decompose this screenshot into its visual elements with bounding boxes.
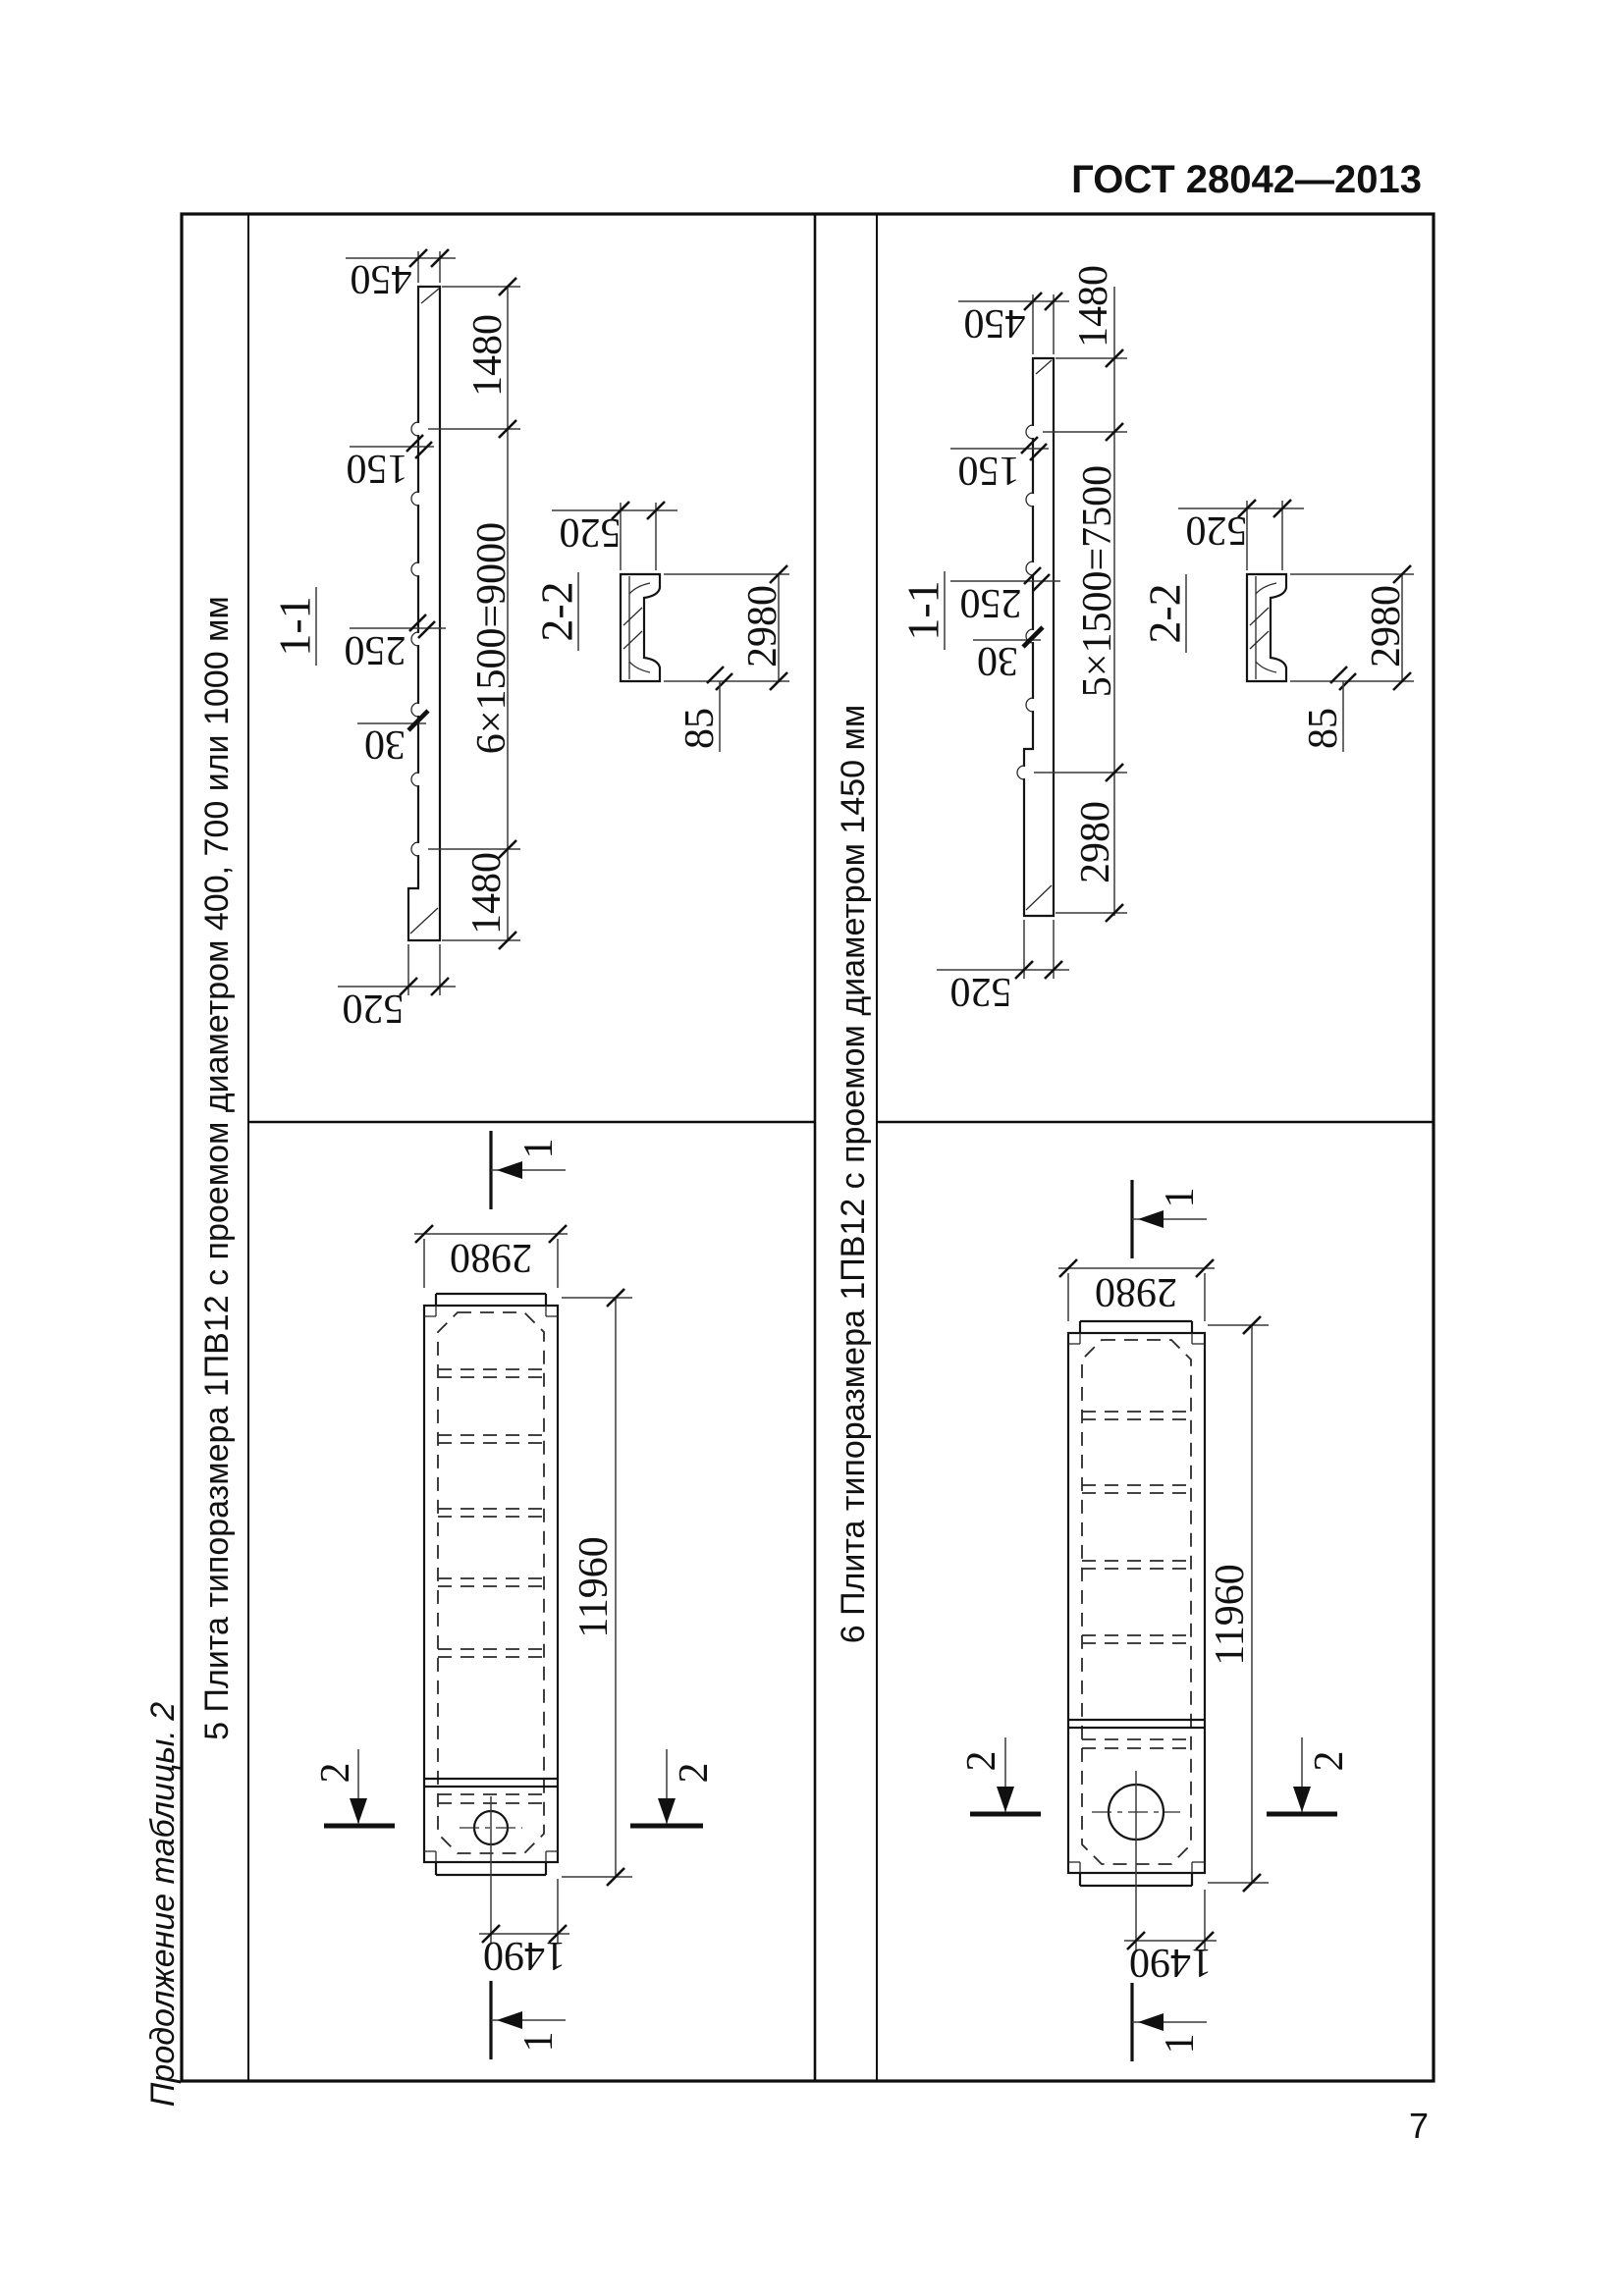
- svg-text:2980: 2980: [1364, 585, 1409, 667]
- cut-mark-1-bottom: 1: [491, 1981, 566, 2059]
- svg-text:1480: 1480: [1071, 265, 1116, 347]
- svg-text:85: 85: [677, 708, 723, 749]
- panel5: 5 Плита типоразмера 1ПВ12 с проемом диам…: [198, 249, 789, 2059]
- panel6: 6 Плита типоразмера 1ПВ12 с проемом диам…: [835, 265, 1414, 2061]
- svg-text:30: 30: [364, 721, 406, 767]
- panel6-title: 6 Плита типоразмера 1ПВ12 с проемом диам…: [835, 705, 872, 1644]
- svg-text:2980: 2980: [1095, 1269, 1177, 1314]
- svg-text:2980: 2980: [740, 585, 785, 667]
- svg-text:520: 520: [343, 986, 405, 1031]
- panel6-section-1-1: 1-1 450 1480: [898, 265, 1128, 1014]
- svg-text:1480: 1480: [464, 852, 510, 934]
- svg-text:1: 1: [516, 2032, 562, 2053]
- plan-outline: [424, 1294, 558, 1875]
- svg-text:6×1500=9000: 6×1500=9000: [469, 522, 514, 754]
- table-continuation-label: Продолжение таблицы. 2: [144, 1702, 182, 2108]
- dim-85: 85: [1301, 667, 1356, 752]
- svg-text:2: 2: [1307, 1751, 1352, 1772]
- dim-85: 85: [677, 667, 732, 752]
- dim-11960-length: 11960: [562, 1289, 632, 1886]
- cut-mark-1-top: 1: [491, 1131, 566, 1209]
- svg-text:85: 85: [1301, 708, 1346, 749]
- svg-text:2: 2: [959, 1751, 1004, 1772]
- svg-text:150: 150: [958, 448, 1020, 493]
- svg-text:2: 2: [672, 1763, 717, 1784]
- dim-520: 520: [1178, 500, 1304, 570]
- svg-text:30: 30: [977, 638, 1018, 683]
- section-label: 1-1: [270, 596, 320, 656]
- cut-mark-1-bottom: 1: [1132, 1983, 1207, 2061]
- cross-section-outline: [621, 574, 660, 681]
- longitudinal-section-outline: [408, 287, 440, 940]
- panel5-section-1-1: 1-1 450 150: [270, 249, 521, 1031]
- panel5-title: 5 Плита типоразмера 1ПВ12 с проемом диам…: [198, 596, 236, 1740]
- document-page: ГОСТ 28042—2013 Продолжение таблицы. 2 7…: [0, 0, 1624, 2296]
- panel6-section-2-2: 2-2 520 2980 85: [1140, 500, 1415, 752]
- table-frame: [182, 214, 1434, 2081]
- dim-1490-hole: 1490: [479, 1879, 569, 1978]
- section-label: 1-1: [898, 580, 948, 640]
- dim-520: 520: [552, 502, 677, 570]
- svg-text:1490: 1490: [1129, 1940, 1212, 1985]
- svg-text:1: 1: [1158, 2034, 1203, 2055]
- svg-text:520: 520: [1186, 507, 1248, 553]
- svg-text:1: 1: [516, 1139, 562, 1159]
- svg-text:450: 450: [351, 256, 412, 301]
- svg-text:250: 250: [960, 580, 1022, 625]
- svg-text:520: 520: [950, 969, 1012, 1014]
- dim-chain-length: 1480 6×1500=9000 1480: [428, 278, 520, 949]
- drawing-sheet: ГОСТ 28042—2013 Продолжение таблицы. 2 7…: [0, 0, 1624, 2296]
- section-label: 2-2: [532, 581, 582, 641]
- svg-text:450: 450: [964, 300, 1026, 346]
- page-number: 7: [1409, 2106, 1429, 2146]
- svg-text:250: 250: [345, 627, 406, 672]
- cut-mark-1-top: 1: [1132, 1180, 1207, 1258]
- svg-text:11960: 11960: [571, 1536, 617, 1637]
- panel5-plan: 1 2980: [313, 1131, 717, 2059]
- svg-text:1480: 1480: [465, 314, 511, 397]
- cut-mark-2-right: 2: [1267, 1737, 1352, 1814]
- dim-2980: 2980: [664, 565, 789, 690]
- section-label: 2-2: [1140, 583, 1190, 643]
- panel6-plan: 1 2980: [959, 1180, 1352, 2061]
- svg-text:5×1500=7500: 5×1500=7500: [1075, 465, 1120, 697]
- svg-text:11960: 11960: [1208, 1564, 1253, 1665]
- dim-1490-hole: 1490: [1124, 1890, 1217, 1985]
- svg-text:2980: 2980: [450, 1235, 532, 1280]
- dim-2980: 2980: [1290, 565, 1414, 690]
- svg-text:1: 1: [1158, 1188, 1203, 1208]
- panel5-section-2-2: 2-2 520 2980 85: [532, 502, 790, 752]
- svg-text:2: 2: [313, 1763, 358, 1784]
- svg-text:2980: 2980: [1073, 801, 1118, 883]
- dim-2980-width: 2980: [414, 1225, 568, 1288]
- dim-11960-length: 11960: [1208, 1316, 1269, 1892]
- dim-520-end: 520: [937, 920, 1069, 1014]
- longitudinal-section-outline: [1024, 358, 1054, 916]
- cut-mark-2-left: 2: [959, 1737, 1041, 1814]
- cut-mark-2-left: 2: [313, 1749, 395, 1826]
- dim-450: 450: [958, 293, 1069, 354]
- cut-mark-2-right: 2: [630, 1749, 717, 1826]
- dim-2980-width: 2980: [1058, 1259, 1215, 1321]
- svg-text:1490: 1490: [483, 1933, 566, 1978]
- svg-text:520: 520: [560, 509, 622, 555]
- svg-text:150: 150: [347, 446, 408, 491]
- dim-520-end: 520: [338, 944, 456, 1031]
- page-header: ГОСТ 28042—2013: [1071, 158, 1422, 201]
- cross-section-outline: [1247, 574, 1286, 681]
